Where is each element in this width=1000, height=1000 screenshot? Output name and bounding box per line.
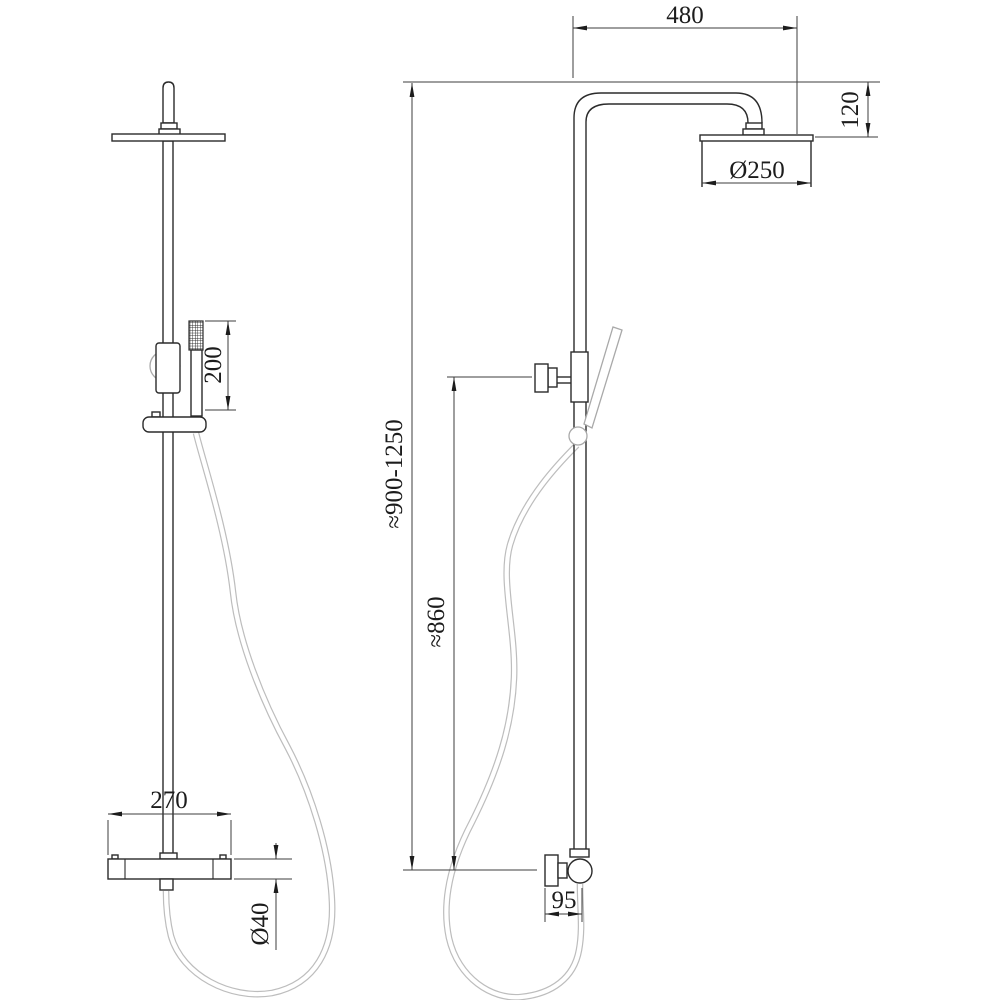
dim-250: Ø250 xyxy=(702,157,811,185)
head-fitting-upper-side xyxy=(746,123,762,129)
head-fitting-upper xyxy=(161,123,177,129)
swivel-joint xyxy=(569,427,587,445)
dim-label-95: 95 xyxy=(552,887,577,914)
dim-label-200: 200 xyxy=(200,346,227,384)
dim-label-250: Ø250 xyxy=(729,157,785,184)
dim-label-900-1250: ≈900-1250 xyxy=(381,419,408,529)
dim-900-1250: ≈900-1250 xyxy=(381,83,414,870)
riser-and-arm-side xyxy=(574,93,762,849)
slider-body-front xyxy=(156,343,180,393)
riser-top-cap xyxy=(163,82,174,123)
valve-body xyxy=(568,859,592,883)
hand-shower-side xyxy=(584,327,622,428)
dim-120: 120 xyxy=(815,82,878,137)
dim-200: 200 xyxy=(200,321,236,410)
head-fitting-lower-side xyxy=(743,129,764,135)
front-view: 200 270 Ø40 xyxy=(108,82,332,994)
bracket-tab xyxy=(152,412,160,417)
slider-body-side xyxy=(571,352,588,402)
dim-label-40: Ø40 xyxy=(247,902,274,945)
dim-95: 95 xyxy=(545,887,582,922)
shower-system-drawing: 200 270 Ø40 xyxy=(0,0,1000,1000)
dim-label-480: 480 xyxy=(666,2,704,29)
slider-knob-outer xyxy=(535,364,548,392)
wall-plate xyxy=(545,855,558,886)
dim-860: ≈860 xyxy=(423,377,532,870)
mixer-top-connector xyxy=(160,853,177,859)
riser-rail-front xyxy=(163,141,173,859)
dim-label-270: 270 xyxy=(150,787,188,814)
dim-label-120: 120 xyxy=(837,91,864,129)
valve-top-fitting xyxy=(570,849,589,857)
mixer-valve-front xyxy=(108,853,231,890)
side-view: 480 120 Ø250 ≈900-1250 xyxy=(381,2,880,997)
arm-inner-edge xyxy=(586,104,748,123)
slider-knob-inner xyxy=(548,368,557,387)
hand-shower-bracket xyxy=(143,417,206,432)
wall-valve-side xyxy=(545,849,592,886)
dim-40: Ø40 xyxy=(234,843,292,950)
hand-shower-spray-face xyxy=(189,321,203,350)
head-flange xyxy=(700,135,813,141)
arm-outer-edge xyxy=(574,93,762,123)
dim-480: 480 xyxy=(573,2,797,134)
rain-shower-head-front xyxy=(112,134,225,141)
mixer-hose-outlet xyxy=(160,879,173,890)
valve-connector xyxy=(558,863,567,878)
dim-label-860: ≈860 xyxy=(423,596,450,647)
technical-drawing-canvas: 200 270 Ø40 xyxy=(0,0,1000,1000)
